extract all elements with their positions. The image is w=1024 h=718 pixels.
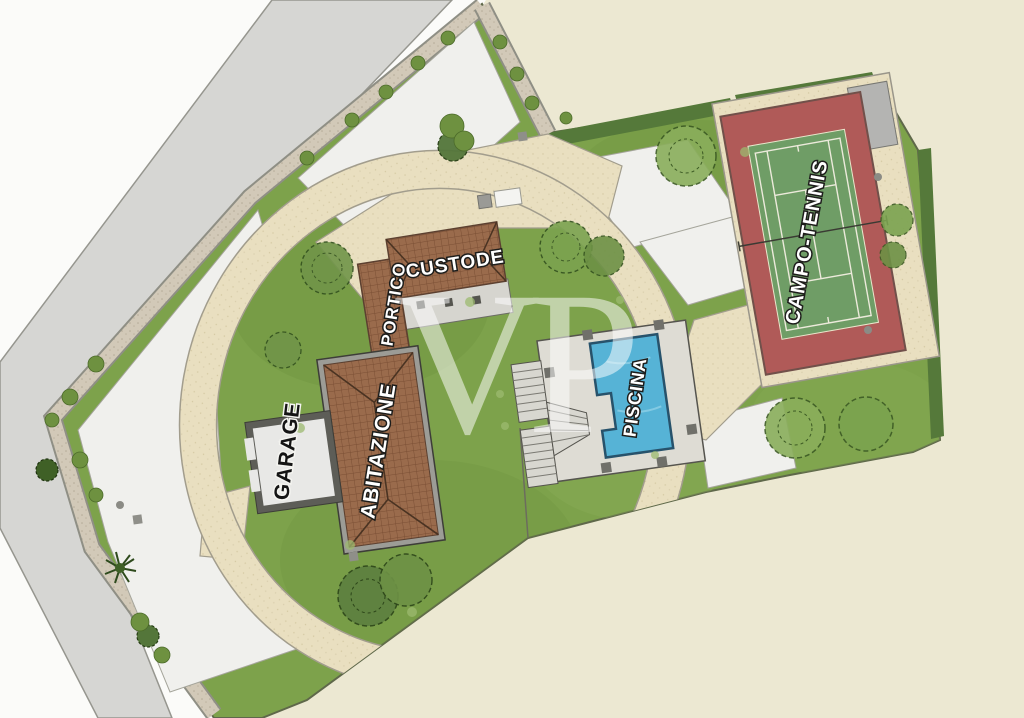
watermark-vp: VP (393, 250, 633, 477)
planter-icon (653, 319, 664, 330)
tree-icon (301, 242, 353, 294)
shrub-icon (510, 67, 524, 81)
tree-icon (880, 242, 906, 268)
tree-icon (881, 204, 913, 236)
bush-icon (36, 459, 58, 481)
lawn-dot-icon (651, 451, 659, 459)
site-plan: GARAGE ABITAZIONE PORTICO CUSTODE PISCIN… (0, 0, 1024, 718)
lawn-dot-icon (740, 147, 750, 157)
lawn-dot-icon (345, 540, 355, 550)
lawn-dot-icon (407, 607, 417, 617)
tree-icon (265, 332, 301, 368)
drain-icon (517, 131, 527, 141)
tree-icon (839, 397, 893, 451)
site-plan-canvas: GARAGE ABITAZIONE PORTICO CUSTODE PISCIN… (0, 0, 1024, 718)
shrub-icon (45, 413, 59, 427)
shrub-icon (72, 452, 88, 468)
planter-icon (656, 456, 667, 467)
shrub-icon (493, 35, 507, 49)
shrub-icon (89, 488, 103, 502)
light-dot-icon (116, 501, 124, 509)
shrub-icon (62, 389, 78, 405)
tree-icon (380, 554, 432, 606)
utility-pad-grey (477, 194, 492, 209)
shrub-icon (300, 151, 314, 165)
shrub-icon (154, 647, 170, 663)
tree-icon (765, 398, 825, 458)
drain-icon (132, 514, 142, 524)
planter-icon (686, 424, 697, 435)
drain-icon (348, 551, 358, 561)
shrub-icon (345, 113, 359, 127)
utility-pad-white (494, 188, 522, 207)
shrub-icon (441, 31, 455, 45)
shrub-icon (379, 85, 393, 99)
shrub-icon (411, 56, 425, 70)
shrub-icon (560, 112, 572, 124)
shrub-icon (525, 96, 539, 110)
shrub-icon (131, 613, 149, 631)
shrub-icon (88, 356, 104, 372)
shrub-icon (454, 131, 474, 151)
light-dot-icon (874, 173, 882, 181)
light-dot-icon (864, 326, 872, 334)
tree-icon (656, 126, 716, 186)
